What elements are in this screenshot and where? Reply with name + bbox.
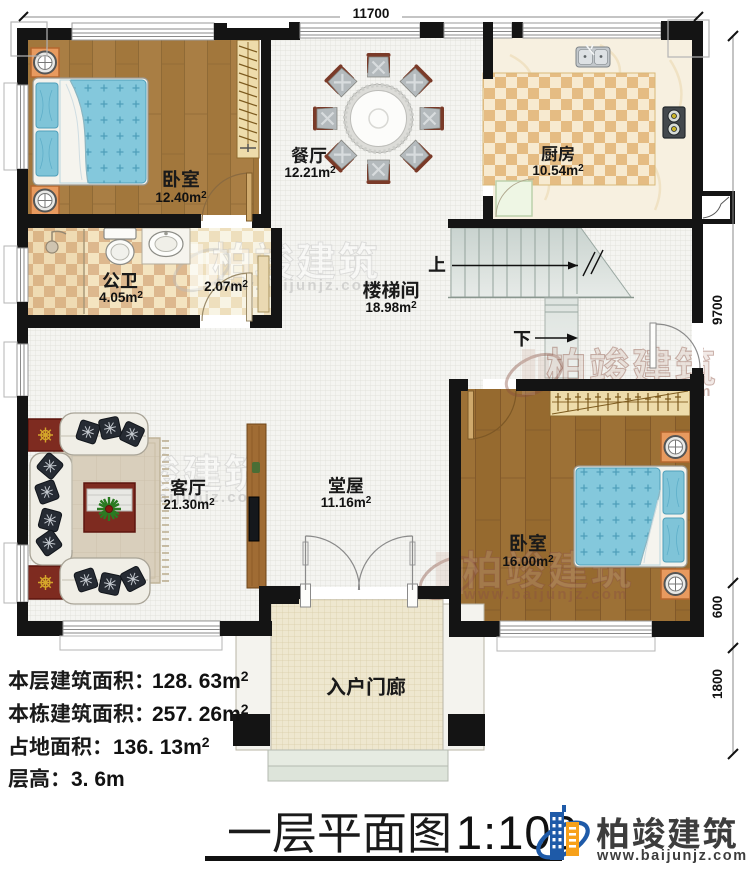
svg-text:3. 6m: 3. 6m [71, 768, 125, 791]
svg-text:www.baijunjz.com: www.baijunjz.com [596, 848, 748, 864]
svg-text:2.07m2: 2.07m2 [204, 279, 248, 294]
svg-text:257. 26m2: 257. 26m2 [152, 701, 249, 726]
svg-text:21.30m2: 21.30m2 [163, 497, 215, 512]
svg-text:12.21m2: 12.21m2 [284, 165, 336, 180]
svg-text:16.00m2: 16.00m2 [502, 554, 554, 569]
svg-text:10.54m2: 10.54m2 [532, 163, 584, 178]
svg-text:4.05m2: 4.05m2 [99, 290, 143, 305]
svg-text:128. 63m2: 128. 63m2 [152, 668, 249, 693]
svg-text:12.40m2: 12.40m2 [155, 190, 207, 205]
svg-text:11.16m2: 11.16m2 [321, 495, 372, 510]
svg-text:136. 13m2: 136. 13m2 [113, 734, 210, 759]
svg-text:18.98m2: 18.98m2 [365, 300, 417, 315]
